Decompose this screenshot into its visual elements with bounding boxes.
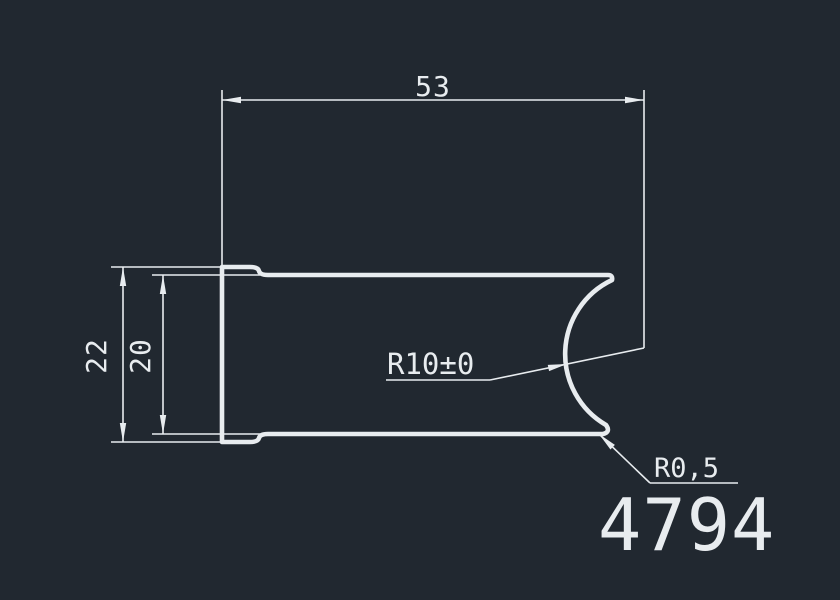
- dim-width-label: 53: [415, 70, 451, 103]
- dim-outer-height-label: 22: [80, 338, 113, 374]
- cad-canvas[interactable]: 53 22 20 R10±0 R0,5 4794: [0, 0, 840, 600]
- part-number: 4794: [598, 483, 775, 567]
- dim-inner-height-label: 20: [124, 338, 157, 374]
- fillet-radius-label: R0,5: [654, 453, 719, 484]
- cove-radius-label: R10±0: [387, 347, 474, 381]
